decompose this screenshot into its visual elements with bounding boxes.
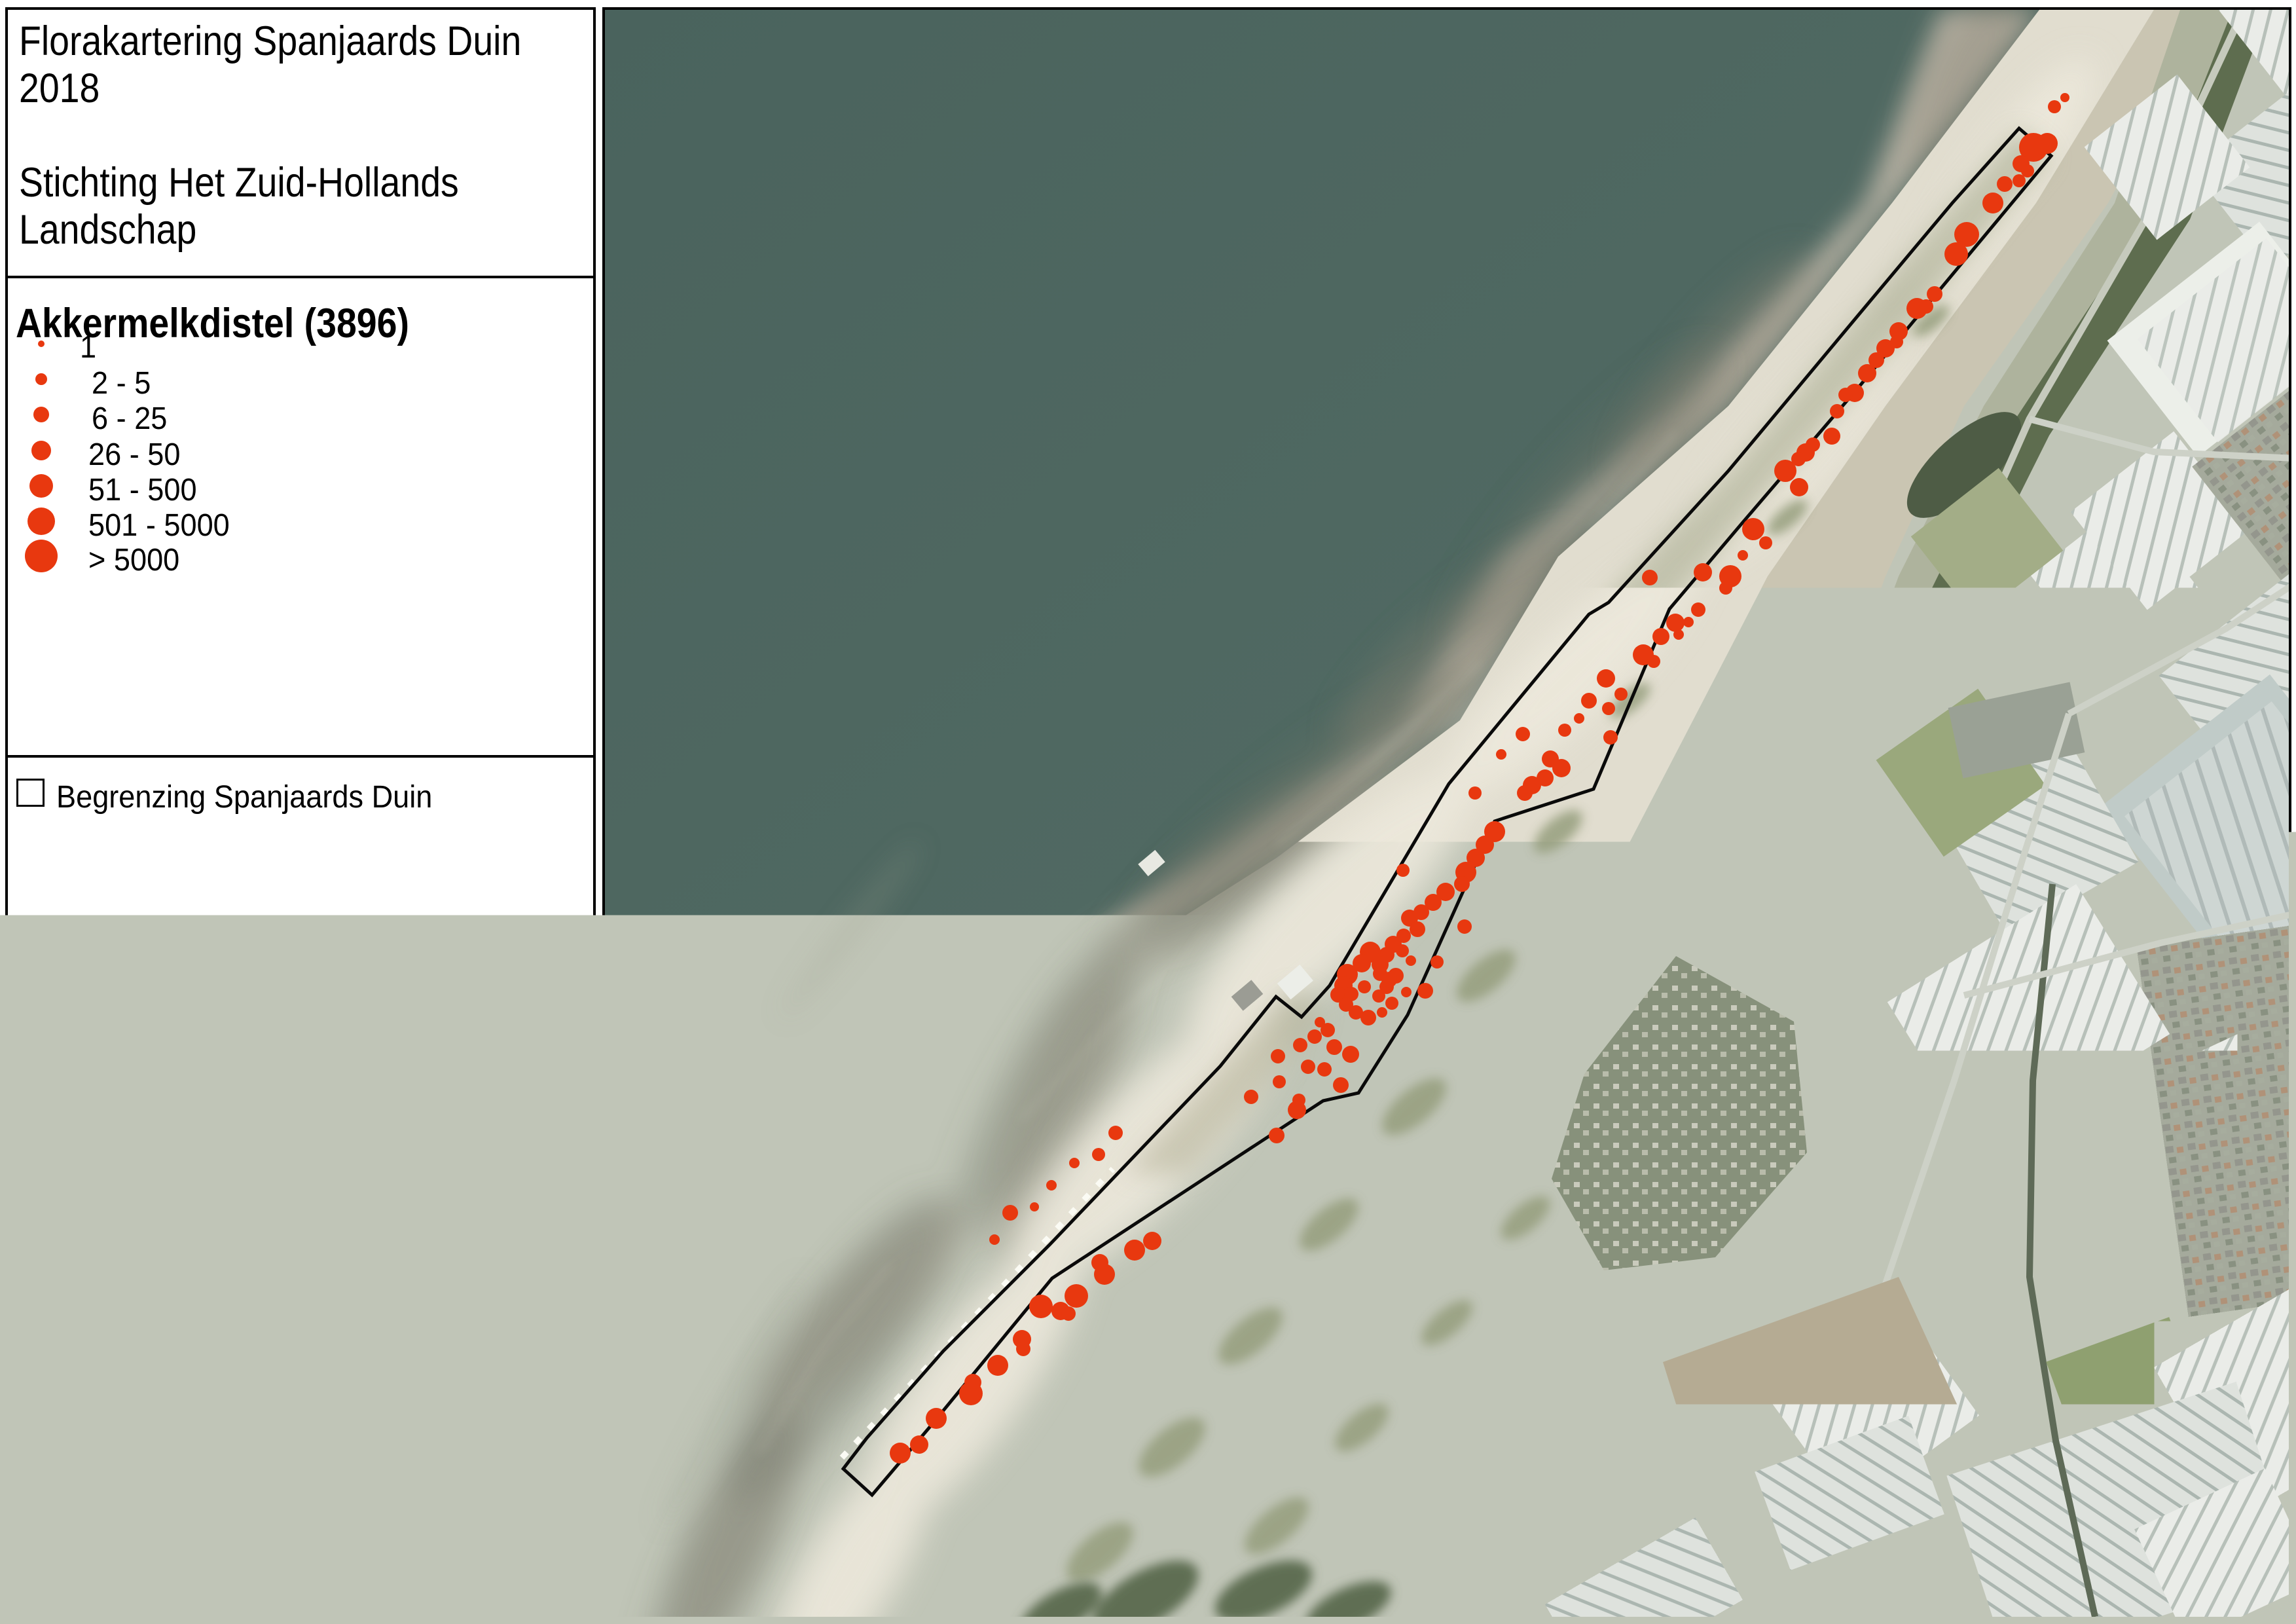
svg-text:600: 600 — [333, 971, 385, 1006]
svg-text:450: 450 — [255, 971, 307, 1006]
svg-text:m: m — [471, 971, 498, 1006]
svg-text:ecoresult: ecoresult — [207, 1306, 579, 1407]
svg-text:750: 750 — [409, 971, 462, 1006]
svg-text:0: 0 — [45, 971, 63, 1006]
svg-text:300: 300 — [177, 971, 229, 1006]
svg-text:150: 150 — [99, 971, 151, 1006]
